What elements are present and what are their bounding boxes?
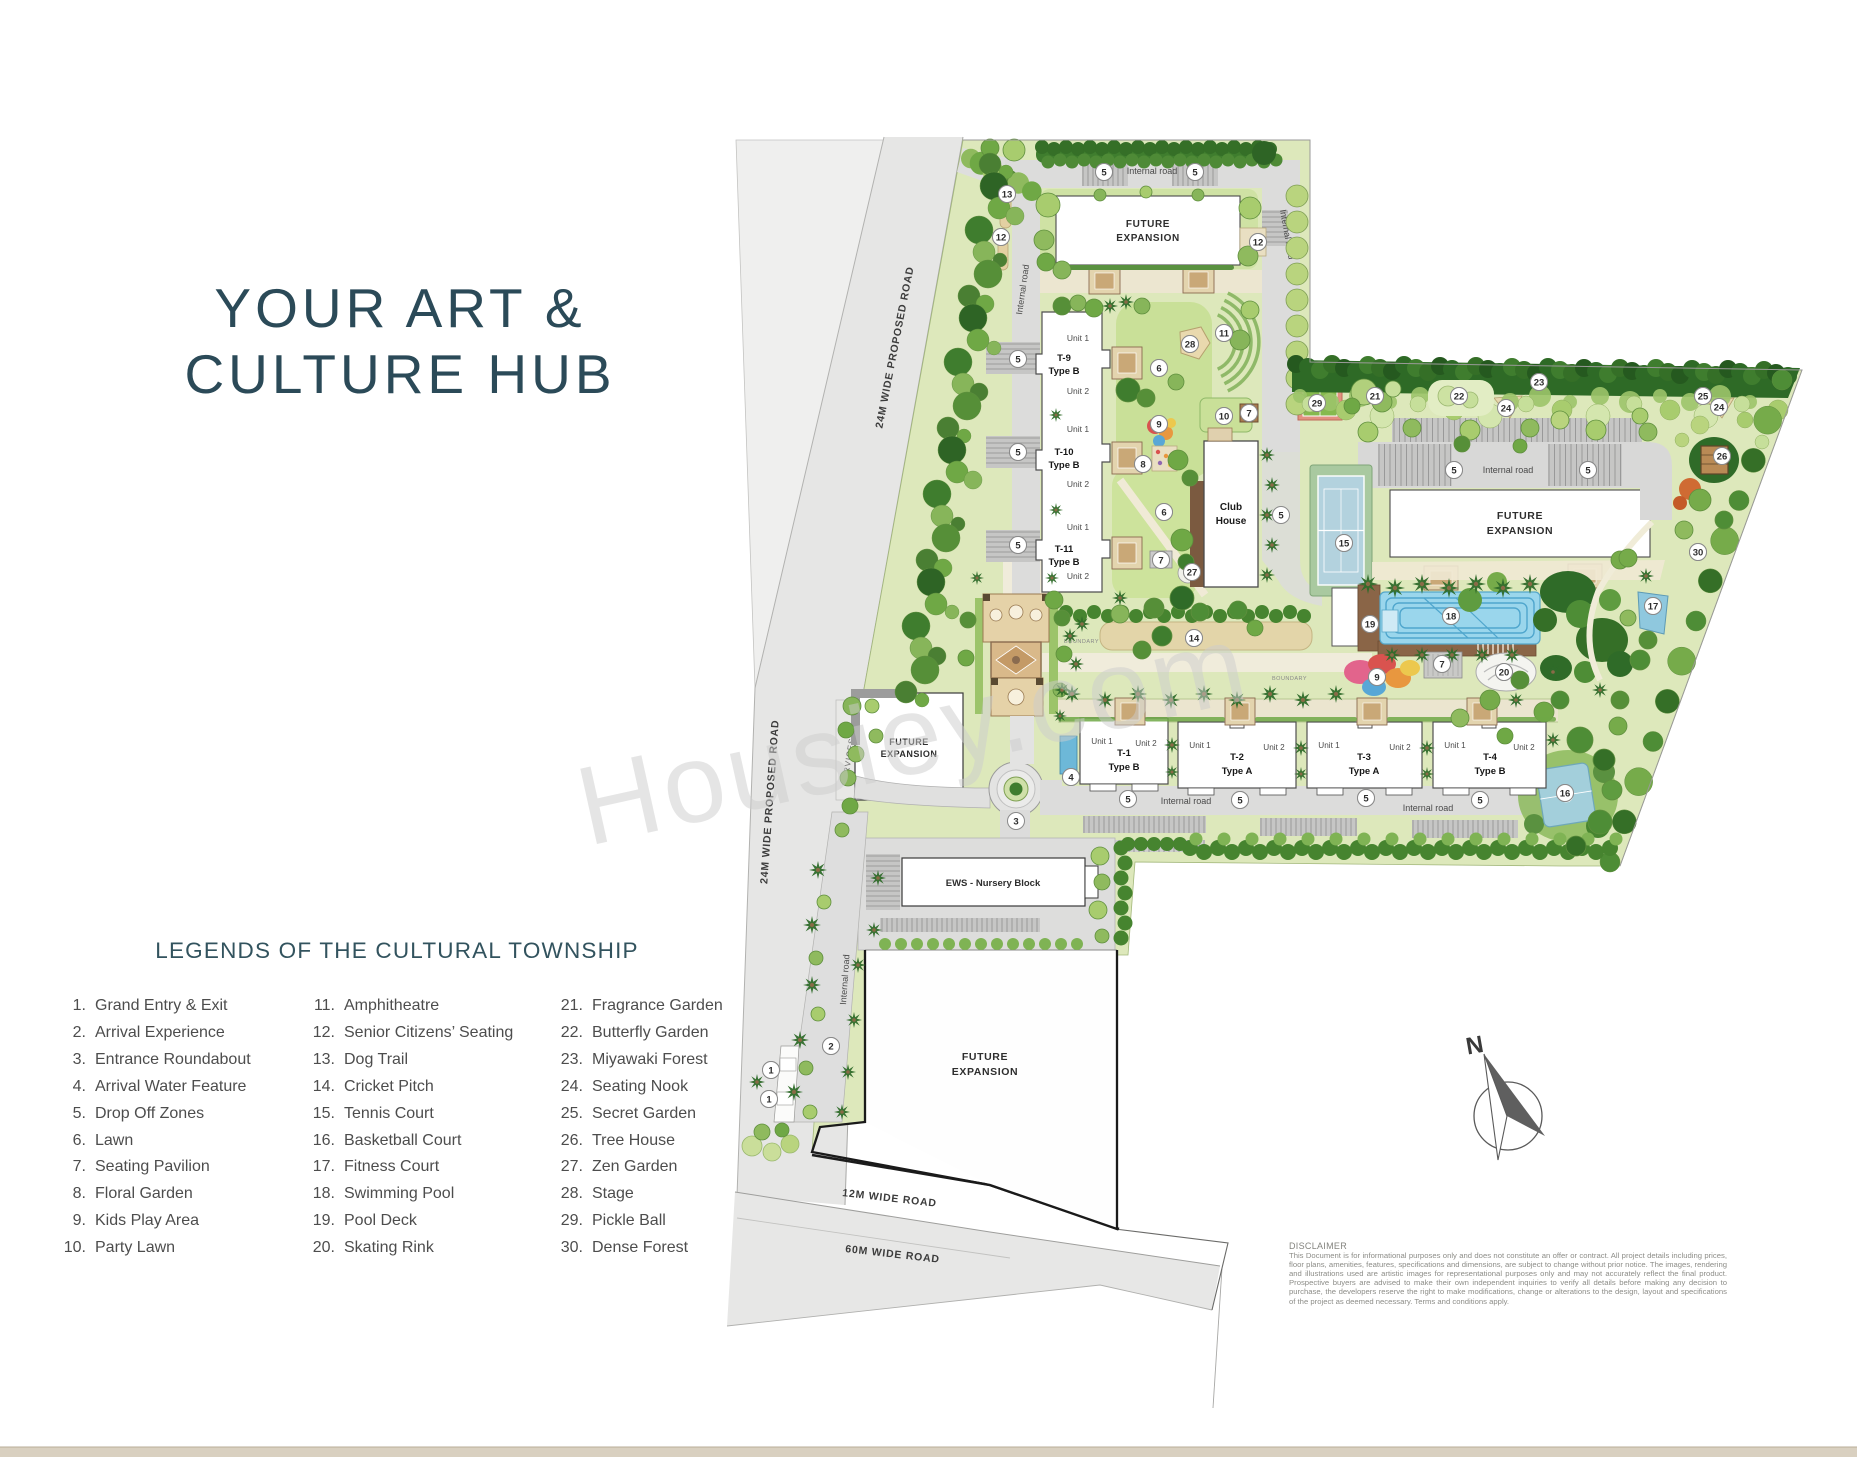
svg-text:18: 18	[1446, 611, 1457, 622]
svg-text:FUTURE: FUTURE	[962, 1051, 1008, 1063]
svg-text:N: N	[1464, 1031, 1486, 1061]
svg-text:6: 6	[1161, 507, 1166, 518]
svg-text:Internal road: Internal road	[1161, 796, 1212, 806]
svg-text:EWS - Nursery Block: EWS - Nursery Block	[946, 878, 1041, 889]
svg-text:24: 24	[1501, 403, 1512, 414]
svg-text:4: 4	[1068, 772, 1074, 783]
svg-text:23: 23	[1534, 377, 1545, 388]
svg-text:T-2: T-2	[1230, 752, 1244, 763]
svg-text:Type A: Type A	[1349, 766, 1380, 777]
svg-text:7: 7	[1439, 659, 1444, 670]
svg-text:27: 27	[1187, 567, 1198, 578]
svg-text:16: 16	[1560, 788, 1571, 799]
svg-text:5: 5	[1015, 447, 1021, 458]
svg-text:T-9: T-9	[1057, 353, 1071, 364]
svg-text:Unit 2: Unit 2	[1067, 571, 1089, 581]
svg-text:15: 15	[1339, 538, 1350, 549]
svg-text:19: 19	[1365, 619, 1376, 630]
svg-text:12M WIDE ROAD: 12M WIDE ROAD	[842, 1187, 938, 1210]
svg-text:28: 28	[1185, 339, 1196, 350]
svg-text:Type B: Type B	[1049, 557, 1080, 568]
svg-text:5: 5	[1237, 795, 1243, 806]
svg-text:5: 5	[1477, 795, 1483, 806]
svg-text:5: 5	[1363, 793, 1369, 804]
svg-text:17: 17	[1648, 601, 1659, 612]
svg-text:5: 5	[1278, 510, 1284, 521]
svg-text:9: 9	[1374, 672, 1379, 683]
svg-text:5: 5	[1451, 465, 1457, 476]
svg-text:Unit 2: Unit 2	[1513, 743, 1535, 752]
svg-text:Type B: Type B	[1475, 766, 1506, 777]
svg-text:12: 12	[996, 232, 1007, 243]
svg-text:5: 5	[1585, 465, 1591, 476]
svg-text:24: 24	[1714, 402, 1725, 413]
svg-text:6: 6	[1156, 363, 1161, 374]
svg-text:11: 11	[1219, 328, 1230, 339]
svg-text:EXPANSION: EXPANSION	[952, 1066, 1018, 1078]
svg-text:13: 13	[1002, 189, 1013, 200]
svg-text:Unit 2: Unit 2	[1067, 386, 1089, 396]
svg-text:Internal road: Internal road	[1483, 465, 1534, 475]
svg-text:Unit 1: Unit 1	[1318, 741, 1340, 750]
svg-text:29: 29	[1312, 398, 1323, 409]
svg-text:T-11: T-11	[1055, 544, 1074, 555]
svg-text:25: 25	[1698, 391, 1709, 402]
svg-text:26: 26	[1717, 451, 1728, 462]
svg-text:5: 5	[1192, 167, 1198, 178]
svg-text:Unit 1: Unit 1	[1067, 522, 1089, 532]
svg-text:Unit 1: Unit 1	[1444, 741, 1466, 750]
svg-text:Unit 2: Unit 2	[1263, 743, 1285, 752]
svg-text:T-4: T-4	[1483, 752, 1497, 763]
svg-text:Unit 1: Unit 1	[1067, 333, 1089, 343]
svg-text:5: 5	[1125, 794, 1131, 805]
svg-text:Club: Club	[1220, 502, 1242, 513]
svg-text:22: 22	[1454, 391, 1465, 402]
svg-text:EXPANSION: EXPANSION	[1487, 525, 1553, 537]
svg-text:Unit 1: Unit 1	[1189, 741, 1211, 750]
svg-text:3: 3	[1013, 816, 1018, 827]
svg-text:2: 2	[828, 1041, 833, 1052]
svg-text:Type B: Type B	[1049, 460, 1080, 471]
svg-text:Unit 1: Unit 1	[1067, 424, 1089, 434]
svg-text:EXPANSION: EXPANSION	[1116, 233, 1180, 244]
svg-text:21: 21	[1370, 391, 1381, 402]
svg-text:Unit 2: Unit 2	[1389, 743, 1411, 752]
svg-text:Unit 2: Unit 2	[1067, 479, 1089, 489]
svg-text:T-3: T-3	[1357, 752, 1371, 763]
svg-text:20: 20	[1499, 667, 1510, 678]
svg-text:Type A: Type A	[1222, 766, 1253, 777]
svg-text:5: 5	[1101, 167, 1107, 178]
svg-text:Type B: Type B	[1049, 366, 1080, 377]
svg-text:1: 1	[766, 1094, 772, 1105]
svg-text:5: 5	[1015, 540, 1021, 551]
svg-text:Internal road: Internal road	[1403, 803, 1454, 813]
svg-text:12: 12	[1253, 237, 1264, 248]
svg-text:BOUNDARY: BOUNDARY	[1272, 676, 1307, 682]
svg-text:House: House	[1216, 516, 1247, 527]
svg-text:5: 5	[1015, 354, 1021, 365]
svg-text:10: 10	[1219, 411, 1230, 422]
svg-text:FUTURE: FUTURE	[1497, 510, 1543, 522]
svg-text:8: 8	[1140, 459, 1145, 470]
svg-text:1: 1	[768, 1065, 774, 1076]
svg-text:Type B: Type B	[1109, 762, 1140, 773]
svg-text:30: 30	[1693, 547, 1704, 558]
svg-text:FUTURE: FUTURE	[1126, 219, 1170, 230]
svg-text:9: 9	[1156, 419, 1161, 430]
svg-text:7: 7	[1158, 555, 1163, 566]
svg-text:T-10: T-10	[1054, 447, 1073, 458]
svg-text:7: 7	[1246, 408, 1251, 419]
